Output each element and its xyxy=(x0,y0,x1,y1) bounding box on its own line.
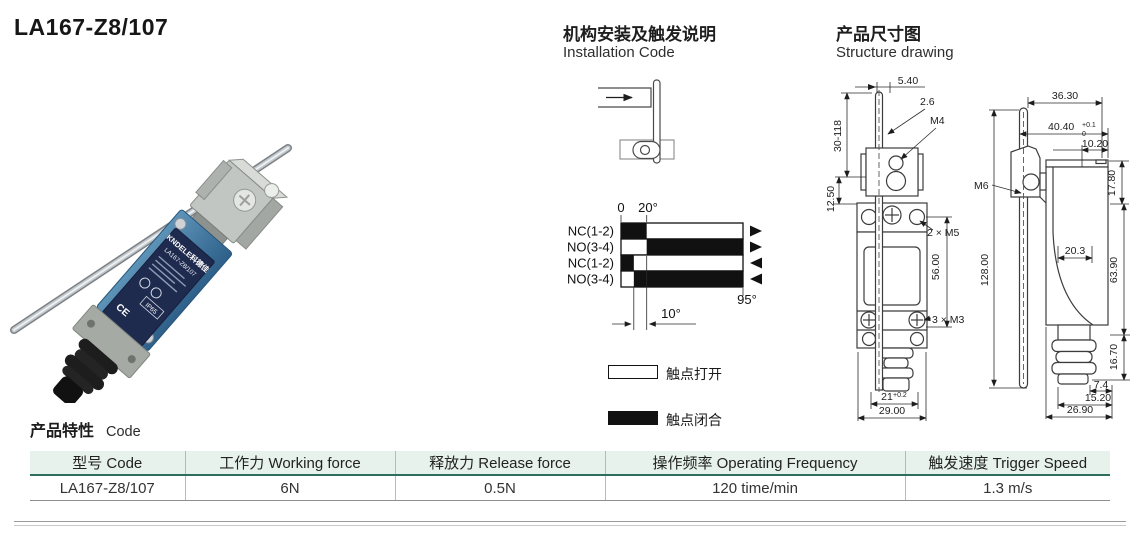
timing-direction-arrow-icon xyxy=(750,258,762,269)
dimension-drawing: 5.40 2.6 M4 30-118 12.50 2 × M5 56.00 3 … xyxy=(825,70,1140,430)
timing-row-label: NO(3-4) xyxy=(567,240,614,255)
datasheet-page: LA167-Z8/107 xyxy=(0,0,1140,540)
side-bellows xyxy=(1052,340,1096,384)
dim-head-width: 36.30 xyxy=(1052,90,1078,102)
dim-plate-height: 17.80 xyxy=(1106,170,1118,196)
installation-heading-cn: 机构安装及触发说明 xyxy=(563,20,716,45)
legend-swatch-open xyxy=(608,365,658,379)
timing-direction-arrow-icon xyxy=(750,274,762,285)
legend-label-closed: 触点闭合 xyxy=(666,410,722,430)
legend-swatch-closed xyxy=(608,411,658,425)
col-header-code: 型号 Code xyxy=(30,451,185,475)
dim-overall-width-tol-up: +0.1 xyxy=(1082,122,1096,129)
dim-gland-offset: 7.4 xyxy=(1094,379,1109,391)
dim-gland-height: 16.70 xyxy=(1108,344,1120,370)
dim-width-inner: 21 xyxy=(881,391,893,403)
m6-hole xyxy=(1023,174,1039,190)
timing-direction-arrow-icon xyxy=(750,242,762,253)
front-bellows xyxy=(879,348,913,391)
dim-body-inner: 20.3 xyxy=(1065,245,1086,257)
structure-heading-cn: 产品尺寸图 xyxy=(836,20,921,45)
installation-heading-en: Installation Code xyxy=(563,44,675,61)
dim-gland-width: 15.20 xyxy=(1085,392,1111,404)
dim-rod-offset: 5.40 xyxy=(898,75,919,87)
cell-code: LA167-Z8/107 xyxy=(30,475,185,501)
features-title-cn: 产品特性 xyxy=(30,423,94,440)
dim-lever-length: 128.00 xyxy=(979,254,991,286)
features-table: 型号 Code 工作力 Working force 释放力 Release fo… xyxy=(30,451,1110,501)
dim-width: 29.00 xyxy=(879,405,905,417)
side-view: 36.30 40.40 +0.1 0 10.20 17.80 M6 128.00 xyxy=(974,90,1130,419)
timing-row-label: NC(1-2) xyxy=(568,256,614,271)
timing-row-track xyxy=(621,255,743,271)
col-header-working-force: 工作力 Working force xyxy=(185,451,395,475)
features-title-en: Code xyxy=(106,424,141,440)
m5-hole xyxy=(862,210,877,225)
bottom-divider xyxy=(14,521,1126,526)
side-head xyxy=(1011,146,1040,197)
features-header-row: 型号 Code 工作力 Working force 释放力 Release fo… xyxy=(30,451,1110,475)
cell-working-force: 6N xyxy=(185,475,395,501)
cell-trigger-speed: 1.3 m/s xyxy=(905,475,1110,501)
timing-rows: NC(1-2)NO(3-4)NC(1-2)NO(3-4) xyxy=(567,223,762,287)
dim-overall-width: 40.40 xyxy=(1048,121,1074,133)
tick-operate: 20° xyxy=(638,200,658,215)
dim-hole-spacing: 56.00 xyxy=(930,254,942,280)
timing-closed-segment xyxy=(647,239,743,255)
tick-differential: 10° xyxy=(661,306,681,321)
product-photo: KNDELE科德佳 LA167-Z8/107 IP65 CE xyxy=(0,58,345,403)
dim-lever-range: 30-118 xyxy=(832,120,844,152)
dim-overall-width-tol-dn: 0 xyxy=(1082,131,1086,138)
dim-rod-dia: 2.6 xyxy=(920,96,935,108)
dim-depth: 26.90 xyxy=(1067,404,1093,416)
timing-row-label: NC(1-2) xyxy=(568,224,614,239)
legend-label-open: 触点打开 xyxy=(666,364,722,384)
front-view: 5.40 2.6 M4 30-118 12.50 2 × M5 56.00 3 … xyxy=(825,75,965,421)
structure-heading-en: Structure drawing xyxy=(836,44,954,61)
cell-release-force: 0.5N xyxy=(395,475,605,501)
dim-cover-thread: 3 × M3 xyxy=(932,314,965,326)
timing-direction-arrow-icon xyxy=(750,226,762,237)
timing-closed-segment xyxy=(621,223,647,239)
switch-body-group: KNDELE科德佳 LA167-Z8/107 IP65 CE xyxy=(32,146,290,403)
col-header-trigger-speed: 触发速度 Trigger Speed xyxy=(905,451,1110,475)
timing-row-label: NO(3-4) xyxy=(567,272,614,287)
features-title: 产品特性Code xyxy=(30,417,141,441)
pivot-axis-icon xyxy=(641,146,650,155)
tick-max: 95° xyxy=(737,292,757,307)
tick-zero: 0 xyxy=(617,200,624,215)
dim-body-height: 63.90 xyxy=(1108,257,1120,283)
installation-diagram xyxy=(575,70,700,170)
page-title: LA167-Z8/107 xyxy=(14,14,168,41)
dim-head-thread: M6 xyxy=(974,180,989,192)
features-data-row: LA167-Z8/107 6N 0.5N 120 time/min 1.3 m/… xyxy=(30,475,1110,501)
timing-closed-segment xyxy=(621,255,634,271)
dim-clamp-thread: M4 xyxy=(930,115,945,127)
cell-operating-frequency: 120 time/min xyxy=(605,475,905,501)
timing-closed-segment xyxy=(634,271,743,287)
col-header-release-force: 释放力 Release force xyxy=(395,451,605,475)
dim-width-inner-tol: +0.2 xyxy=(893,392,907,399)
contact-timing-chart: NC(1-2)NO(3-4)NC(1-2)NO(3-4) 0 20° 95° 1… xyxy=(550,190,820,335)
col-header-operating-frequency: 操作频率 Operating Frequency xyxy=(605,451,905,475)
dim-pivot-height: 12.50 xyxy=(825,186,837,212)
dim-top-offset: 10.20 xyxy=(1082,138,1108,150)
